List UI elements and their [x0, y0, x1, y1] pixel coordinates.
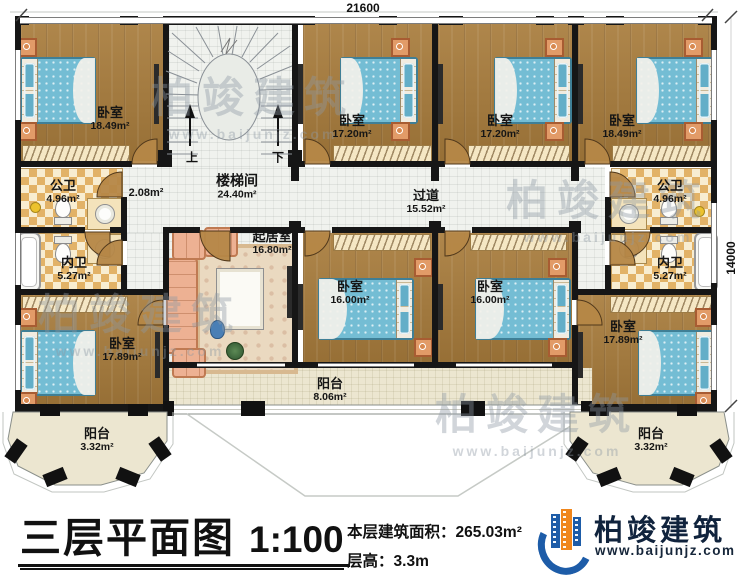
floor-height-label: 层高： [347, 553, 394, 570]
wall [650, 227, 712, 233]
sink [619, 204, 639, 224]
toilet-tank [660, 236, 678, 244]
wall [330, 161, 432, 167]
wall [577, 404, 712, 412]
bed [20, 330, 96, 396]
plan-stats: 本层建筑面积：265.03m² 层高：3.3m [347, 520, 522, 575]
room-name: 阳台 [634, 427, 667, 442]
room-area: 4.96m² [653, 193, 686, 205]
room-name: 卧室 [603, 320, 642, 335]
landing-area-label: 2.08m² [129, 187, 164, 199]
toilet-tank [54, 217, 72, 225]
room-name: 卧室 [330, 280, 369, 295]
sofa [166, 258, 198, 354]
room-area: 17.20m² [332, 128, 371, 140]
wardrobe [22, 296, 128, 313]
logo-building-icon [551, 514, 560, 548]
armchair [172, 230, 206, 260]
window [197, 363, 285, 367]
room-name: 起居室 [252, 230, 291, 245]
wall-pillar [158, 150, 172, 167]
wall [472, 227, 577, 233]
wall [610, 227, 625, 233]
wall [292, 233, 298, 368]
brand-logo-icon [538, 508, 588, 568]
room-name: 卧室 [90, 106, 129, 121]
room-name: 阳台 [313, 377, 346, 392]
wall-pillar [288, 150, 302, 167]
floor-height-row: 层高：3.3m [347, 549, 522, 571]
wall [572, 233, 578, 300]
bed [20, 57, 96, 124]
room-label-balcony-center: 阳台 8.06m² [313, 377, 346, 403]
wall [605, 197, 611, 233]
brand-url: www.baijunjz.com [595, 543, 736, 558]
room-name: 楼梯间 [216, 173, 258, 189]
wall [577, 289, 712, 295]
window [15, 50, 21, 120]
nightstand [545, 122, 564, 141]
room-name: 阳台 [80, 427, 113, 442]
floor-area-value: 265.03m² [456, 524, 522, 541]
floor-hall-notch-right [578, 233, 605, 290]
room-area: 17.20m² [480, 128, 519, 140]
sink [95, 204, 115, 224]
plan-title: 三层平面图1:100 [18, 504, 350, 567]
wall-pillar [569, 221, 581, 233]
room-label-bedroom-t2: 卧室 17.20m² [332, 114, 371, 140]
toilet-tank [54, 236, 72, 244]
room-label-corridor: 过道 15.52m² [406, 189, 445, 215]
tv [154, 64, 159, 124]
room-name: 卧室 [102, 337, 141, 352]
stairs-up-label: 上 [186, 149, 198, 166]
roof-outline [187, 414, 590, 496]
wall [432, 17, 438, 167]
floor-stairwell [169, 23, 292, 167]
wall [15, 404, 167, 412]
floor-corridor [121, 167, 605, 233]
room-name: 卧室 [602, 114, 641, 129]
window [15, 233, 21, 285]
dimension-right: 14000 [724, 236, 738, 280]
floor-lamp [694, 206, 705, 217]
blanket [73, 331, 95, 395]
window [456, 363, 552, 367]
room-area: 18.49m² [602, 128, 641, 140]
wall [605, 233, 611, 241]
wall [15, 161, 132, 167]
brand-logo: 柏竣建筑 www.baijunjz.com [538, 505, 748, 571]
room-area: 24.40m² [216, 189, 258, 201]
room-name: 公卫 [653, 179, 686, 194]
room-name: 卧室 [480, 114, 519, 129]
tv [298, 284, 303, 330]
bed [636, 57, 714, 124]
room-area: 3.32m² [80, 441, 113, 453]
window [711, 50, 717, 120]
room-label-bath-private-right: 内卫 5.27m² [653, 256, 686, 282]
stairs-down-label: 下 [272, 149, 284, 166]
room-name: 卧室 [332, 114, 371, 129]
room-label-bath-public-right: 公卫 4.96m² [653, 179, 686, 205]
room-label-bedroom-m2: 卧室 16.00m² [470, 280, 509, 306]
floorplan-canvas: 卧室 18.49m² 卧室 17.20m² 卧室 17.20m² 卧室 18.4… [0, 0, 750, 575]
plan-title-text: 三层平面图 [20, 515, 235, 561]
wall [121, 265, 127, 291]
room-label-bedroom-tr: 卧室 18.49m² [602, 114, 641, 140]
wall [332, 227, 437, 233]
room-name: 卧室 [470, 280, 509, 295]
window [20, 17, 712, 24]
room-area: 5.27m² [653, 270, 686, 282]
room-area: 17.89m² [603, 334, 642, 346]
wall [610, 161, 712, 167]
room-area: 15.52m² [406, 203, 445, 215]
wall [572, 17, 578, 167]
wall [292, 17, 298, 167]
wall [15, 289, 163, 295]
room-area: 17.89m² [102, 351, 141, 363]
wall [163, 17, 169, 167]
nightstand [545, 38, 564, 57]
room-label-bedroom-m1: 卧室 16.00m² [330, 280, 369, 306]
window [15, 325, 21, 390]
tv [155, 332, 160, 378]
room-area: 16.00m² [330, 294, 369, 306]
nightstand [414, 258, 433, 277]
tv [438, 284, 443, 330]
wall [121, 197, 127, 233]
wall-pillar [431, 167, 439, 181]
nightstand [414, 338, 433, 357]
nightstand [548, 258, 567, 277]
coffee-table [216, 268, 264, 330]
room-area: 18.49m² [90, 120, 129, 132]
logo-building-icon [573, 517, 581, 546]
room-label-bedroom-br: 卧室 17.89m² [603, 320, 642, 346]
wall [572, 325, 578, 412]
wall [470, 161, 572, 167]
room-label-bath-public-left: 公卫 4.96m² [46, 179, 79, 205]
floor-area-label: 本层建筑面积： [347, 524, 456, 541]
room-label-balcony-bl: 阳台 3.32m² [80, 427, 113, 453]
tv [298, 64, 303, 124]
plan-scale: 1:100 [249, 519, 344, 560]
watermark-url: www.baijunjz.com [435, 443, 639, 459]
window [711, 325, 717, 390]
room-area: 3.32m² [634, 441, 667, 453]
room-name: 公卫 [46, 179, 79, 194]
window [711, 203, 717, 283]
wall [121, 233, 127, 241]
room-label-living: 起居室 16.80m² [252, 230, 291, 256]
wall [432, 233, 438, 368]
room-label-stairwell: 楼梯间 24.40m² [216, 173, 258, 200]
tv [578, 332, 583, 378]
room-area: 16.00m² [470, 294, 509, 306]
wall [163, 233, 169, 300]
toilet-tank [660, 217, 678, 225]
nightstand [684, 38, 703, 57]
room-area: 16.80m² [252, 244, 291, 256]
room-name: 内卫 [57, 256, 90, 271]
wall [15, 227, 85, 233]
dimension-top: 21600 [333, 1, 393, 15]
nightstand [391, 122, 410, 141]
wardrobe [333, 234, 431, 251]
room-label-bedroom-tl: 卧室 18.49m² [90, 106, 129, 132]
room-label-bedroom-bl: 卧室 17.89m² [102, 337, 141, 363]
floor-height-value: 3.3m [394, 553, 429, 570]
logo-building-icon [561, 509, 572, 550]
room-area: 8.06m² [313, 391, 346, 403]
wall-pillar [571, 167, 579, 181]
room-area: 4.96m² [46, 193, 79, 205]
wardrobe [470, 234, 567, 251]
room-label-bath-private-left: 内卫 5.27m² [57, 256, 90, 282]
room-name: 内卫 [653, 256, 686, 271]
dim-tick [725, 11, 737, 23]
vase [210, 320, 225, 339]
balcony-rail [167, 405, 592, 414]
tv [438, 64, 443, 124]
tv [578, 64, 583, 124]
plant [226, 342, 244, 360]
window [318, 363, 414, 367]
floor-hall-notch-left [127, 233, 163, 290]
room-name: 过道 [406, 189, 445, 204]
sink [619, 239, 639, 259]
wall-pillar [429, 221, 441, 233]
wall [163, 325, 169, 412]
nightstand [391, 38, 410, 57]
room-label-balcony-br: 阳台 3.32m² [634, 427, 667, 453]
room-area: 5.27m² [57, 270, 90, 282]
room-label-bedroom-t3: 卧室 17.20m² [480, 114, 519, 140]
nightstand [684, 122, 703, 141]
wall-pillar [291, 167, 299, 181]
nightstand [548, 338, 567, 357]
floor-area-row: 本层建筑面积：265.03m² [347, 520, 522, 542]
bed [638, 330, 714, 396]
sink [95, 239, 115, 259]
floor-lamp [30, 202, 41, 213]
dim-tick [725, 400, 737, 412]
wall [605, 265, 611, 291]
